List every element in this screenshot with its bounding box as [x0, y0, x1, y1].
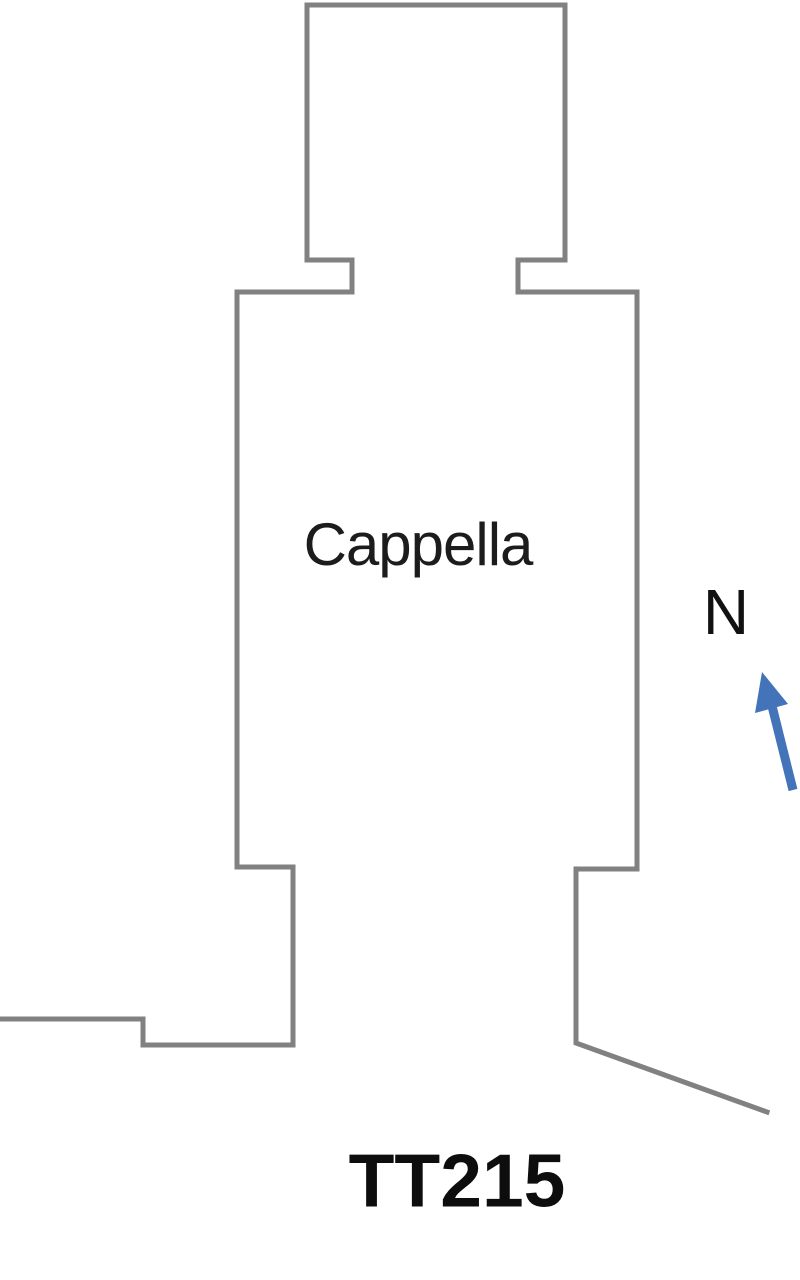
tomb-id-label: TT215: [349, 1144, 566, 1219]
north-arrow-icon: [755, 672, 793, 790]
north-arrow-head: [755, 672, 788, 713]
room-label: Cappella: [304, 515, 533, 575]
floor-plan-page: Cappella N TT215: [0, 0, 800, 1280]
north-label: N: [703, 580, 749, 644]
floor-plan-drawing: [0, 0, 800, 1280]
north-arrow-shaft: [772, 706, 793, 790]
